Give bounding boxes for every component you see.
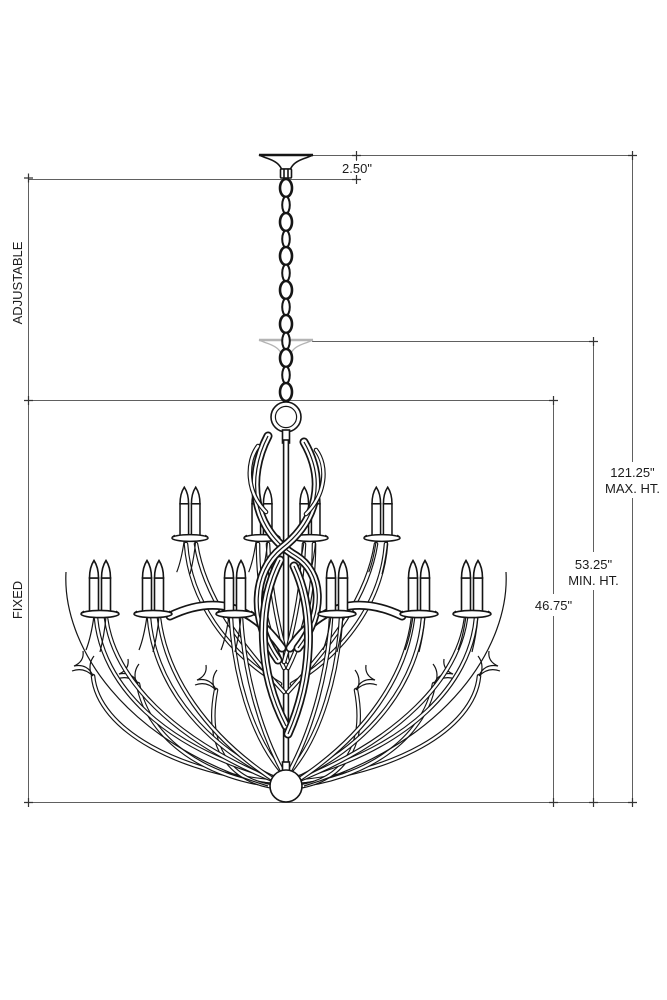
dim-label-min-height-suffix: MIN. HT. — [568, 573, 619, 588]
dim-label-min-height-value: 53.25" — [575, 557, 613, 572]
dim-label-adjustable: ADJUSTABLE — [10, 241, 25, 324]
chandelier-drawing — [66, 155, 506, 802]
dim-label-fixed: FIXED — [10, 581, 25, 619]
dim-label-fixture-height: 46.75" — [535, 598, 573, 613]
dimension-ticks — [24, 151, 637, 807]
dimension-labels: 2.50" 121.25" MAX. HT. 53.25" MIN. HT. 4… — [10, 161, 660, 619]
chandelier-dimension-diagram: 2.50" 121.25" MAX. HT. 53.25" MIN. HT. 4… — [0, 0, 667, 1000]
ceiling-canopy — [259, 155, 313, 178]
bottom-ball-finial — [270, 762, 302, 802]
dim-label-max-height-value: 121.25" — [610, 465, 655, 480]
technical-drawing-canvas: 2.50" 121.25" MAX. HT. 53.25" MIN. HT. 4… — [0, 0, 667, 1000]
dim-label-max-height-suffix: MAX. HT. — [605, 481, 660, 496]
dim-label-canopy-height: 2.50" — [342, 161, 372, 176]
hanging-chain — [280, 179, 292, 401]
top-ring — [271, 402, 301, 443]
dimension-lines — [28, 155, 633, 803]
